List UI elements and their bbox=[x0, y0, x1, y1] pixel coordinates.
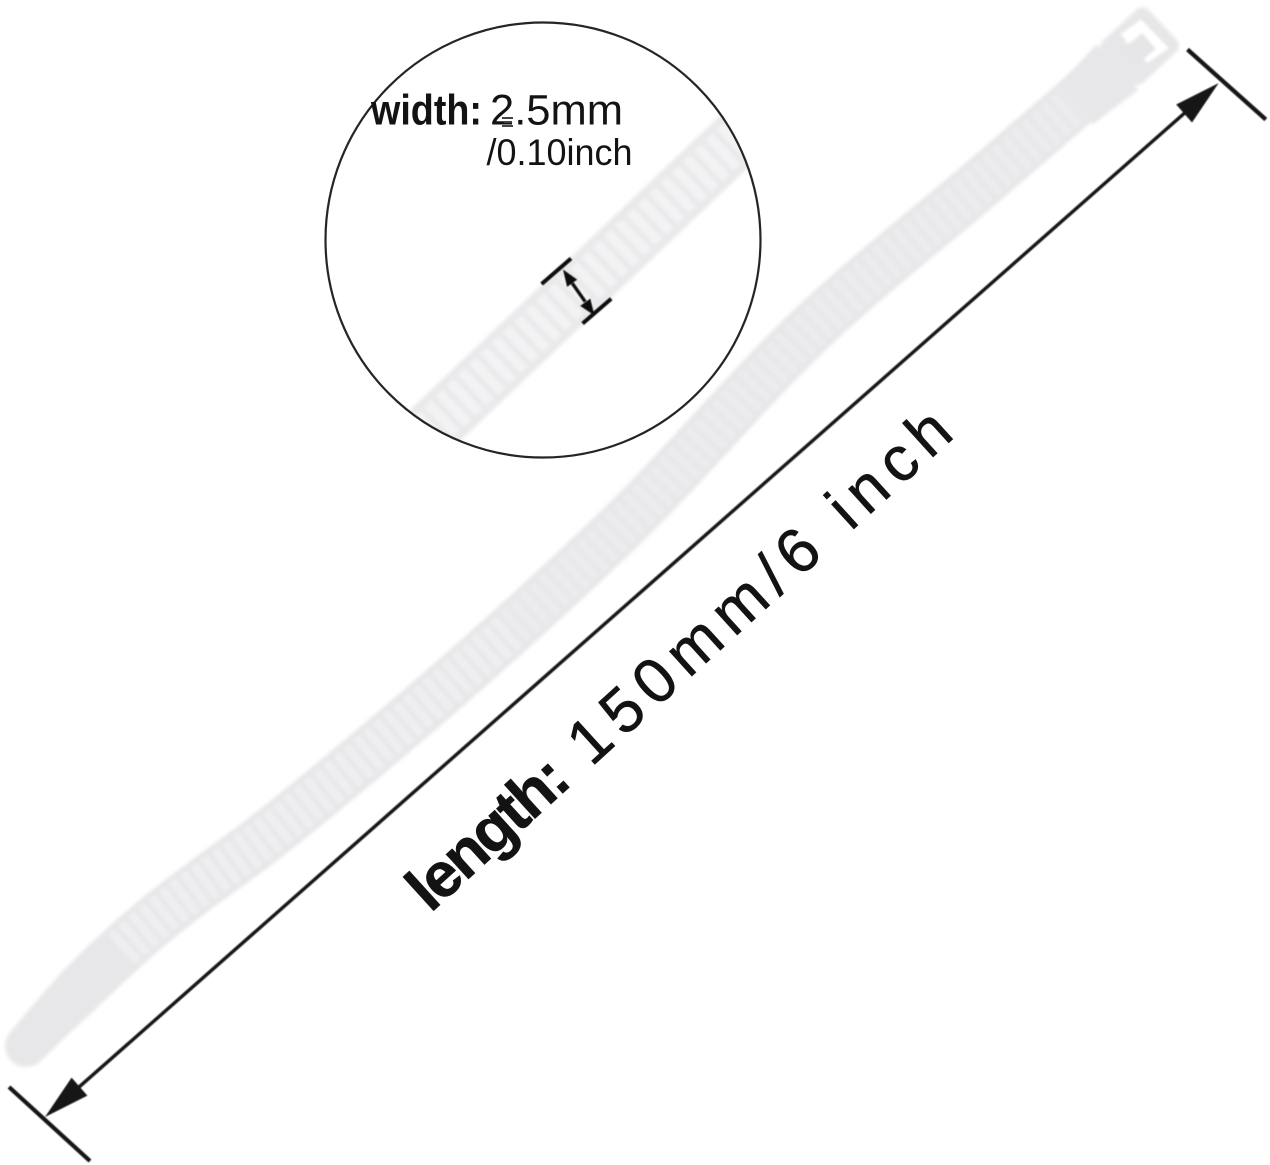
svg-text:/0.10inch: /0.10inch bbox=[487, 132, 633, 173]
svg-text:width:2.5mm: width:2.5mm bbox=[370, 87, 623, 135]
